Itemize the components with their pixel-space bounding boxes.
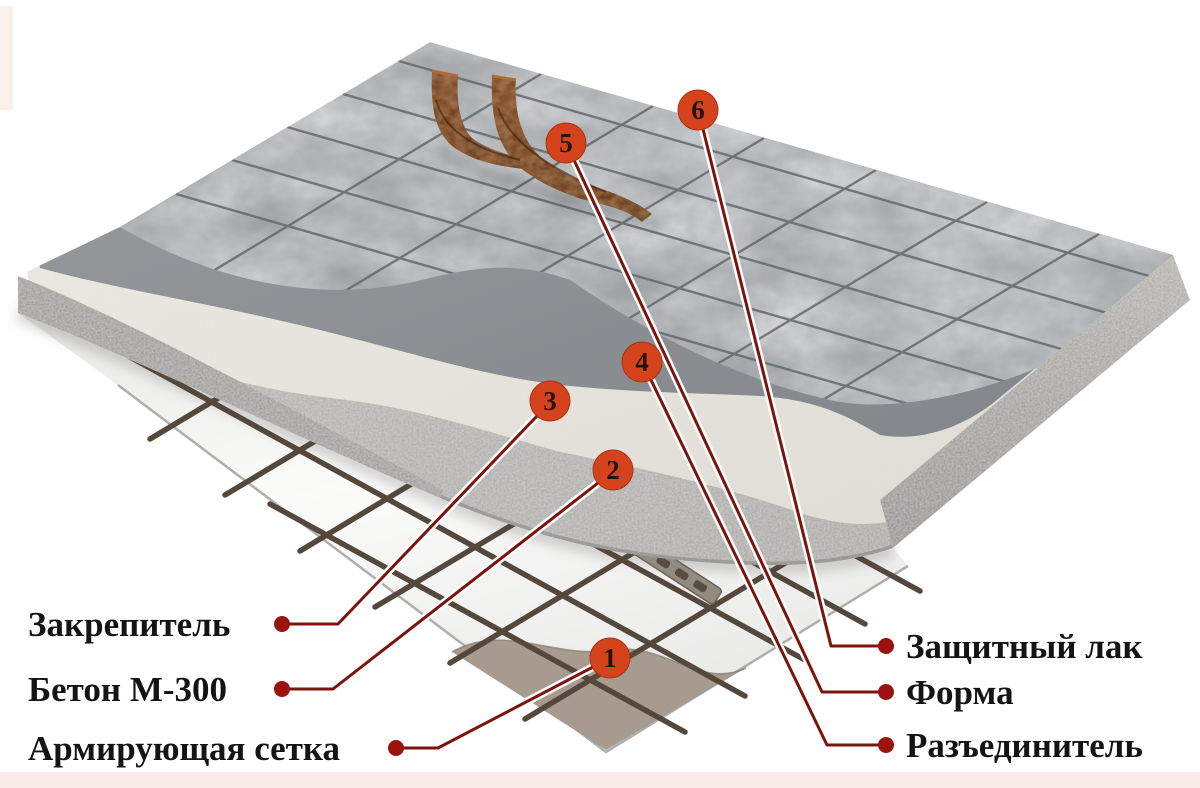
label-dot-release-agent — [878, 737, 894, 753]
label-concrete: Бетон М-300 — [28, 670, 227, 709]
marker-5-number: 5 — [559, 128, 573, 158]
marker-2: 2 — [593, 450, 633, 490]
label-dot-hardener — [274, 616, 290, 632]
layers-diagram-canvas: 1 2 3 4 5 6 Закрепитель Бетон М-300 Арми… — [0, 0, 1200, 788]
stamped-concrete-diagram-page: 1 2 3 4 5 6 Закрепитель Бетон М-300 Арми… — [0, 0, 1200, 788]
label-hardener: Закрепитель — [28, 605, 230, 644]
label-mesh: Армирующая сетка — [28, 729, 340, 768]
marker-4-number: 4 — [635, 347, 649, 377]
marker-1-number: 1 — [603, 643, 617, 673]
bottom-accent-strip — [0, 772, 1200, 788]
label-dot-mat — [878, 684, 894, 700]
label-mat: Форма — [906, 673, 1014, 712]
marker-5: 5 — [546, 123, 586, 163]
label-dot-mesh — [388, 740, 404, 756]
corner-accent-strip — [0, 6, 13, 110]
marker-1: 1 — [590, 638, 630, 678]
marker-2-number: 2 — [606, 455, 620, 485]
label-dot-lacquer — [878, 638, 894, 654]
label-release-agent: Разъединитель — [906, 726, 1143, 765]
marker-6-number: 6 — [691, 95, 705, 125]
marker-6: 6 — [678, 90, 718, 130]
marker-3: 3 — [530, 381, 570, 421]
marker-4: 4 — [622, 342, 662, 382]
label-lacquer: Защитный лак — [906, 627, 1143, 666]
marker-3-number: 3 — [543, 386, 557, 416]
label-dot-concrete — [274, 681, 290, 697]
